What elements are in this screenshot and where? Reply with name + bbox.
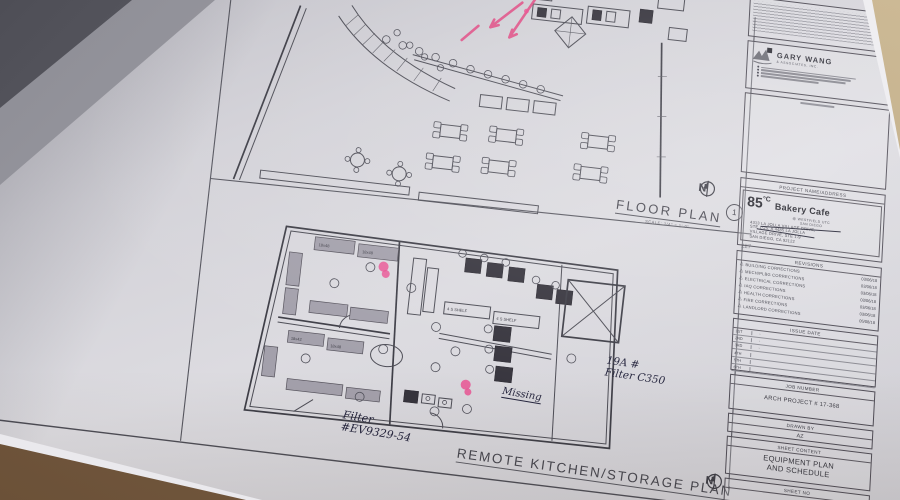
wall-outline	[233, 0, 678, 227]
display-counter-arc	[330, 4, 463, 101]
revision-delta-icon: △	[740, 261, 744, 266]
equipment-dark-square	[639, 9, 653, 23]
kitchen-equipment-block	[376, 0, 692, 129]
svg-text:4 S SHELF: 4 S SHELF	[496, 316, 517, 323]
north-arrow-icon: N	[698, 182, 707, 195]
pink-marker-arrows	[462, 0, 536, 48]
revision-delta-icon: △	[739, 268, 743, 273]
revision-delta-icon: △	[738, 289, 742, 294]
firm-logo-icon	[751, 45, 774, 66]
revision-delta-icon: △	[738, 304, 742, 309]
revision-delta-icon: △	[739, 275, 743, 280]
photo-canvas: 18x48 18x48 18x42 18x48 4 S SHELF	[0, 0, 900, 500]
svg-text:4 S SHELF: 4 S SHELF	[447, 306, 468, 313]
revision-delta-icon: △	[739, 282, 743, 287]
pink-highlighter-marks	[365, 261, 485, 396]
title-block: GARY WANG & ASSOCIATES, INC. PROJECT NAM…	[713, 0, 900, 500]
stamp-header-texture	[800, 102, 834, 108]
revision-delta-icon: △	[738, 297, 742, 302]
north-arrow-icon: N	[705, 475, 714, 488]
